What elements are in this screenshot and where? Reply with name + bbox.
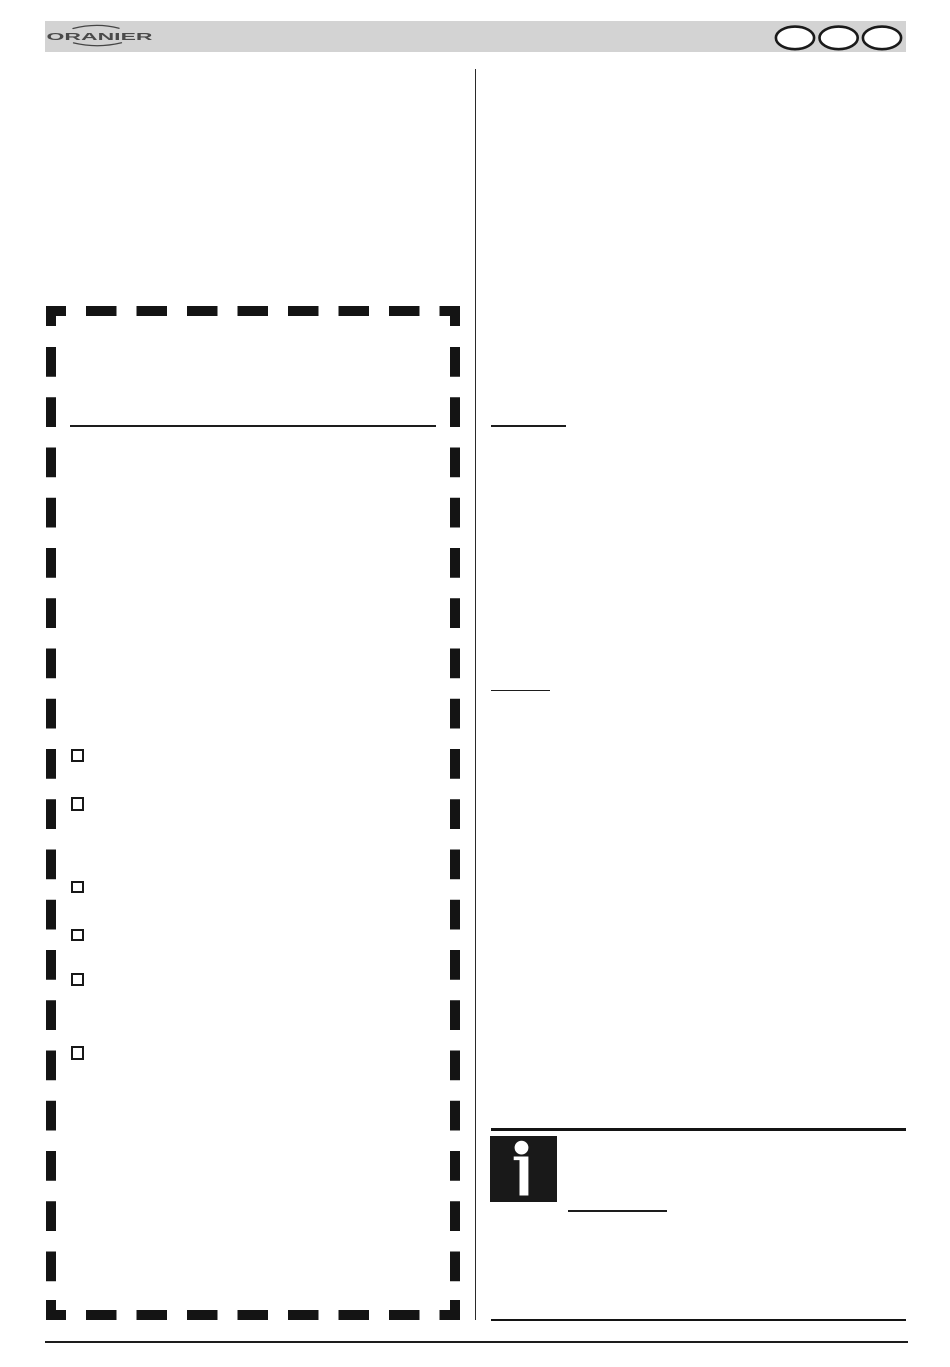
svg-text:ORANIER: ORANIER bbox=[47, 32, 154, 43]
